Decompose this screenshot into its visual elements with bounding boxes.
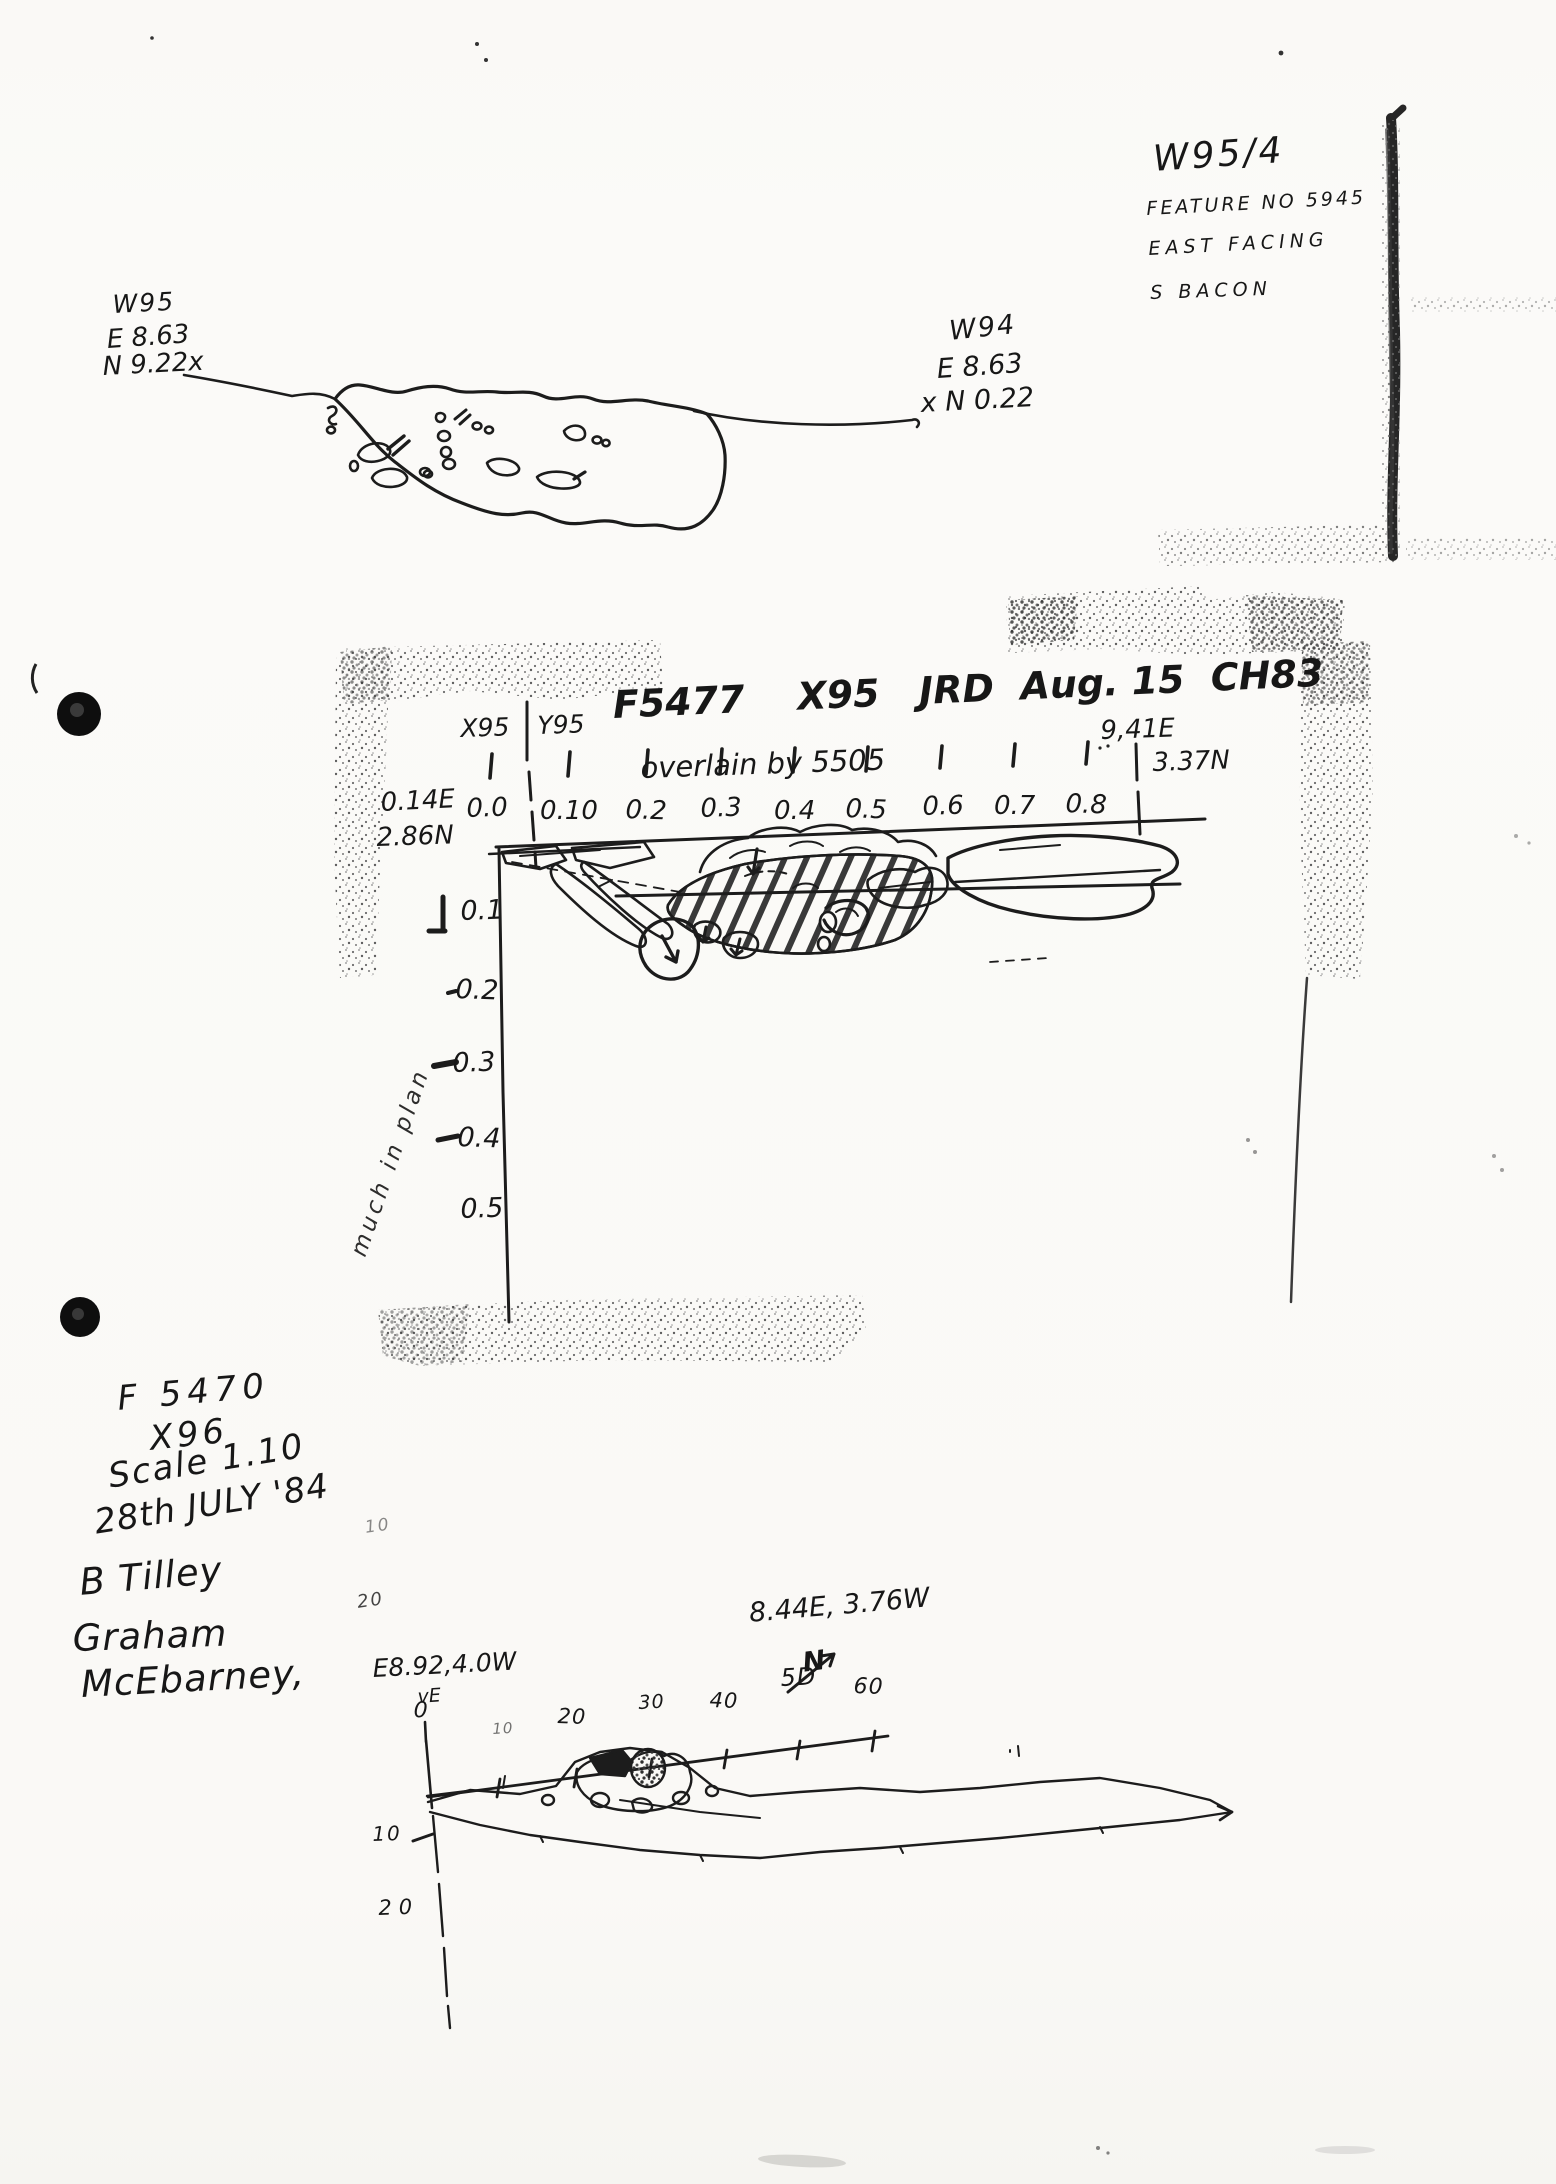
feature-note-recorder: S BACON xyxy=(1150,280,1272,303)
section-depth-label: 0.5 xyxy=(460,1195,504,1223)
plan-right-easting: E 8.63 xyxy=(936,350,1023,383)
section-ruler-label: 0.0 xyxy=(466,795,508,822)
grid-column-right-label: Y95 xyxy=(537,711,585,738)
section-depth-label: 0.4 xyxy=(457,1124,501,1152)
profile-x-label: 60 xyxy=(853,1676,884,1699)
section-ruler-label: 0.10 xyxy=(540,798,598,824)
section-right-easting: 9,41E xyxy=(1100,715,1175,744)
plan-left-label: W95 xyxy=(112,289,176,317)
section-ruler-label: 0.3 xyxy=(700,795,742,822)
section-right-northing: 3.37N xyxy=(1152,747,1230,776)
profile-coord-left: E8.92,4.0W xyxy=(372,1648,517,1680)
section-depth-label: 0.1 xyxy=(460,897,504,925)
grid-column-left-label: X95 xyxy=(460,714,510,741)
faint-scale-label: 10 xyxy=(364,1516,392,1536)
section-ruler-label: 0.6 xyxy=(922,793,964,820)
section-subtitle: overlain by 5505 xyxy=(640,745,886,783)
faint-scale-label: 20 xyxy=(356,1590,385,1612)
profile-y-label: 20 xyxy=(378,1897,419,1919)
profile-x-label: 10 xyxy=(492,1721,514,1737)
plan-left-northing: N 9.22x xyxy=(102,349,204,380)
bottom-note-line: McEbarney, xyxy=(80,1654,306,1703)
profile-x-label: 0 xyxy=(413,1700,429,1723)
section-ruler-label: 0.2 xyxy=(625,797,667,824)
scanned-field-drawing-page: W95/4 FEATURE NO 5945 EAST FACING S BACO… xyxy=(0,0,1556,2184)
section-left-easting: 0.14E xyxy=(380,786,456,816)
section-depth-label: 0.2 xyxy=(455,976,499,1004)
profile-x-label: 5D xyxy=(780,1664,817,1690)
profile-y-label: 10 xyxy=(372,1823,402,1844)
profile-drawing xyxy=(413,1654,1232,2028)
drawing-layer xyxy=(0,0,1556,2184)
plan-right-label: W94 xyxy=(948,311,1018,345)
section-left-northing: 2.86N xyxy=(376,822,454,851)
section-ruler-label: 0.4 xyxy=(774,798,815,824)
bottom-note-line: Graham xyxy=(72,1615,228,1657)
profile-x-label: 20 xyxy=(557,1706,586,1728)
plan-drawing xyxy=(184,375,919,529)
section-ruler-label: 0.5 xyxy=(845,796,887,823)
feature-note-title: W95/4 xyxy=(1152,133,1286,178)
scan-specks xyxy=(150,36,1530,2169)
section-ruler-label: 0.8 xyxy=(1065,791,1107,818)
plan-right-northing: x N 0.22 xyxy=(920,384,1035,417)
profile-x-label: 30 xyxy=(638,1693,665,1713)
section-depth-label: 0.3 xyxy=(452,1049,496,1077)
punch-holes xyxy=(32,664,101,1337)
section-ruler-label: 0.7 xyxy=(994,793,1035,819)
tape-shadow-marks xyxy=(334,296,1556,1366)
profile-x-label: 40 xyxy=(709,1690,738,1712)
